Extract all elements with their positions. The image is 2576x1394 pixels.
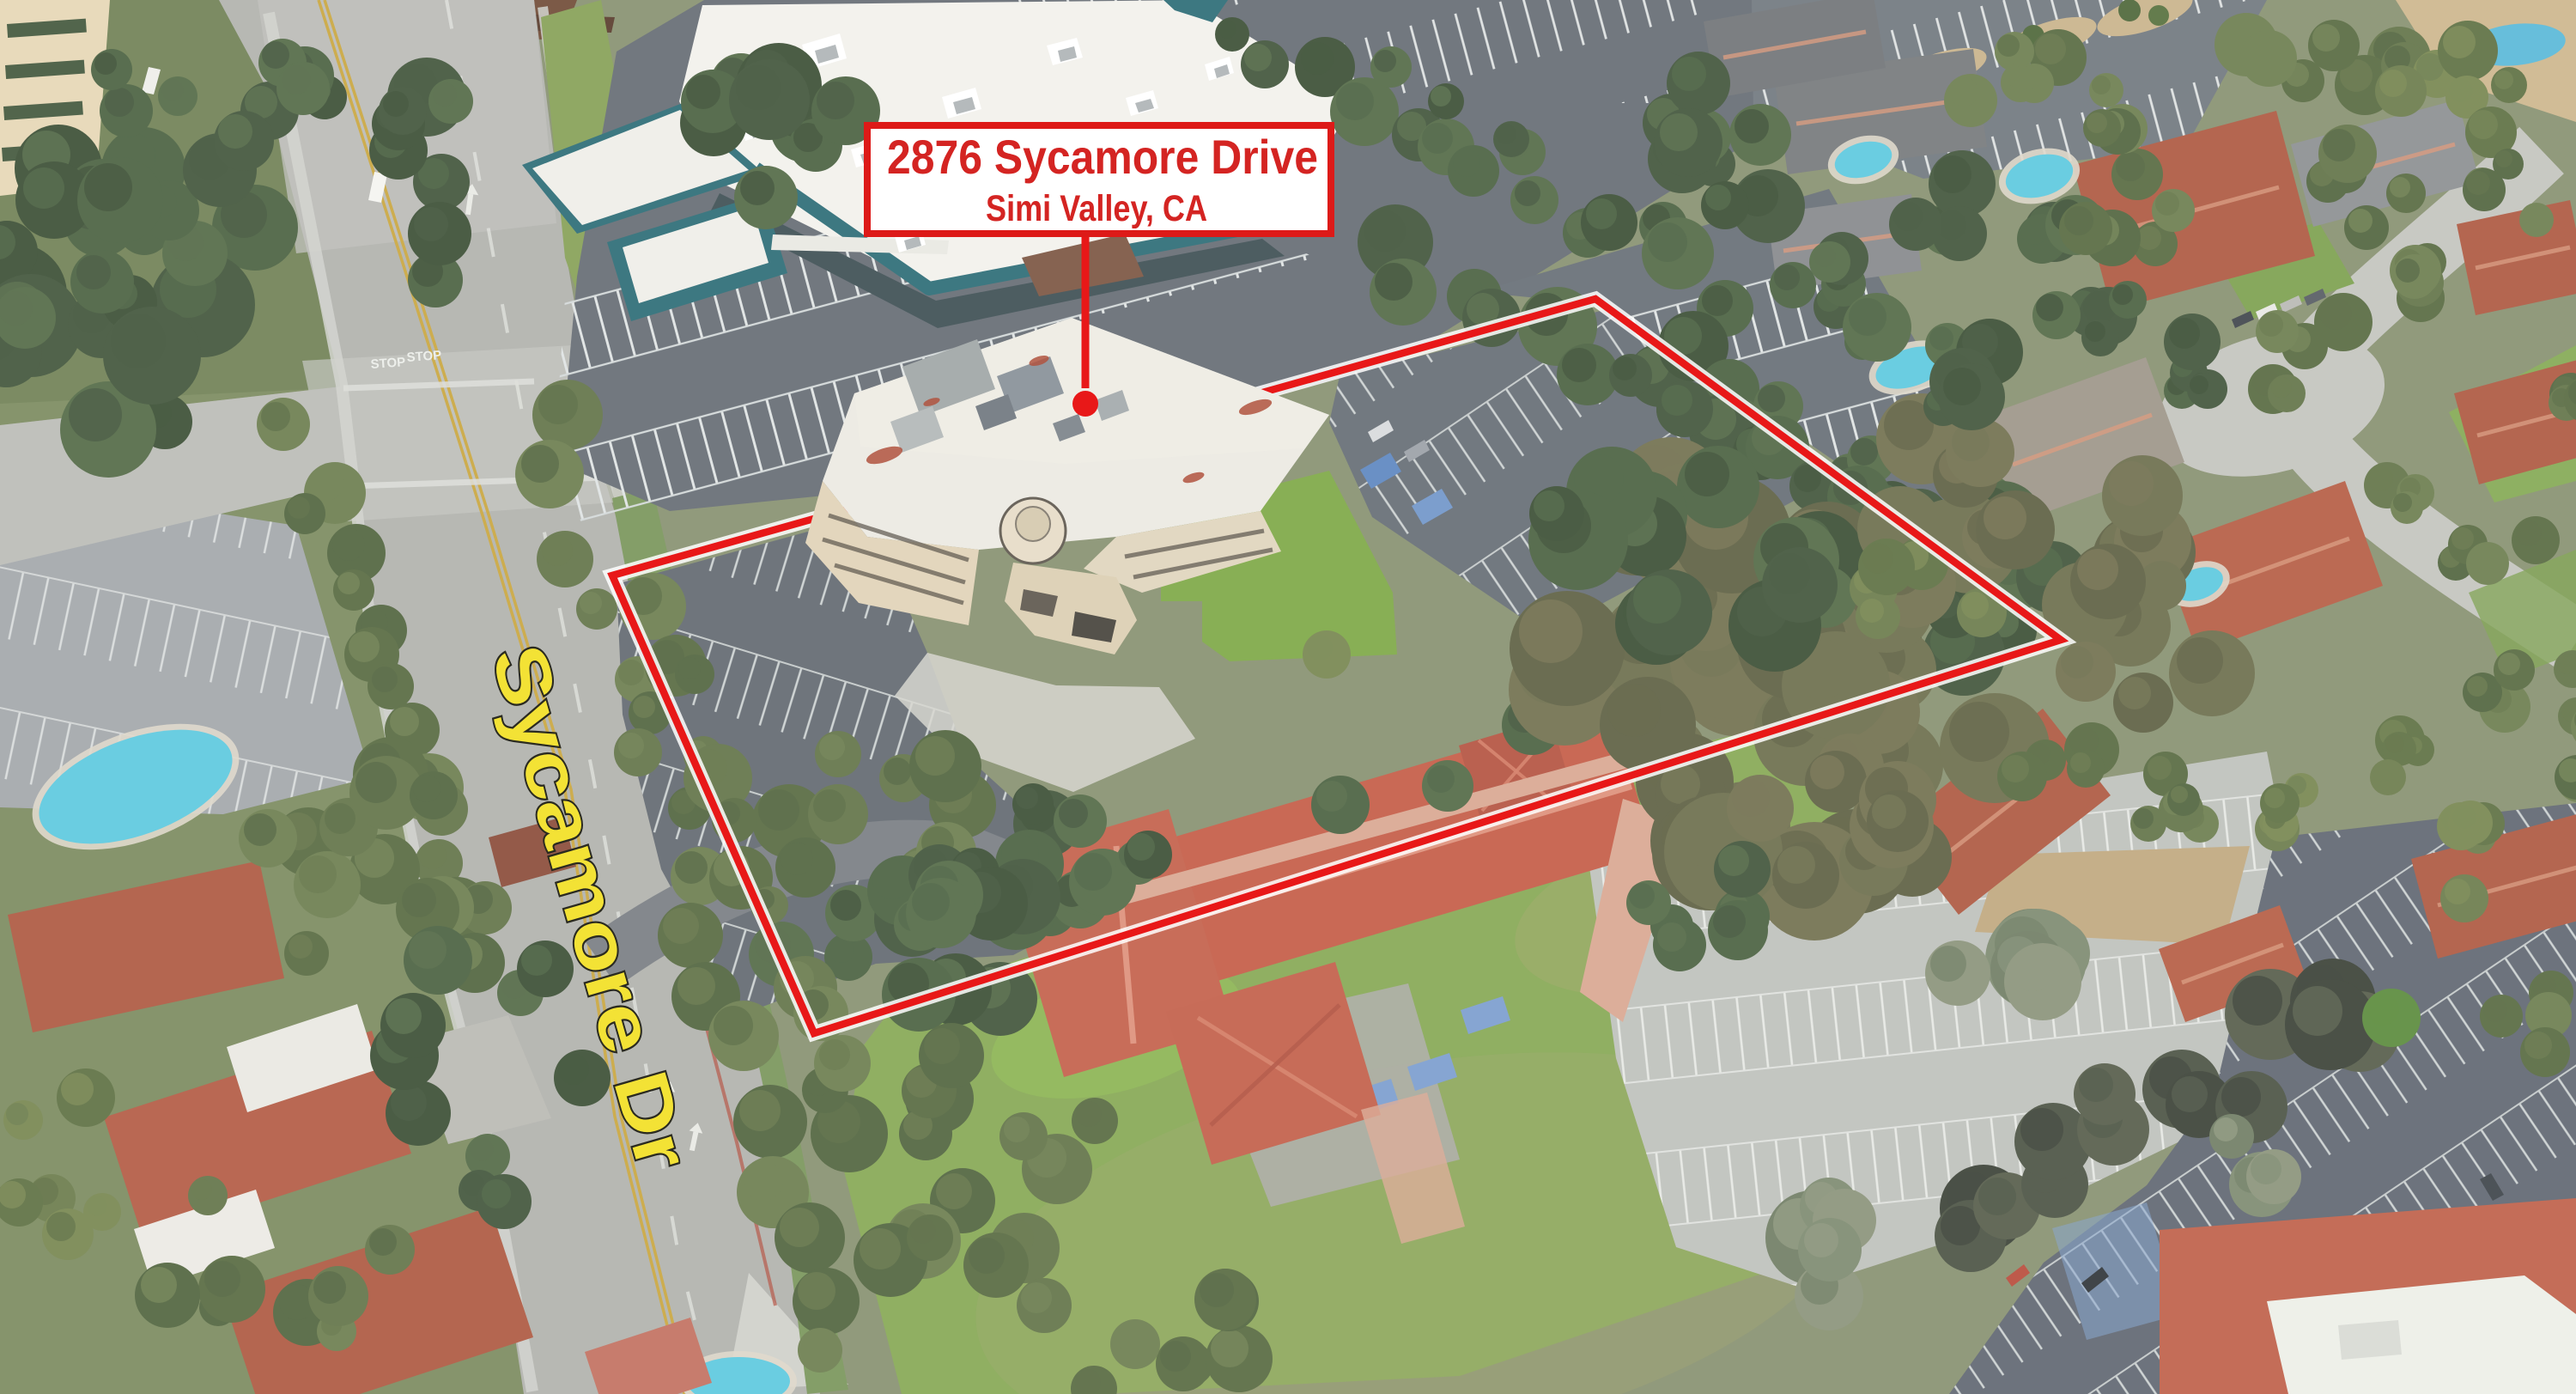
svg-text:2876 Sycamore Drive: 2876 Sycamore Drive xyxy=(887,130,1318,184)
svg-text:Simi Valley, CA: Simi Valley, CA xyxy=(986,188,1207,229)
